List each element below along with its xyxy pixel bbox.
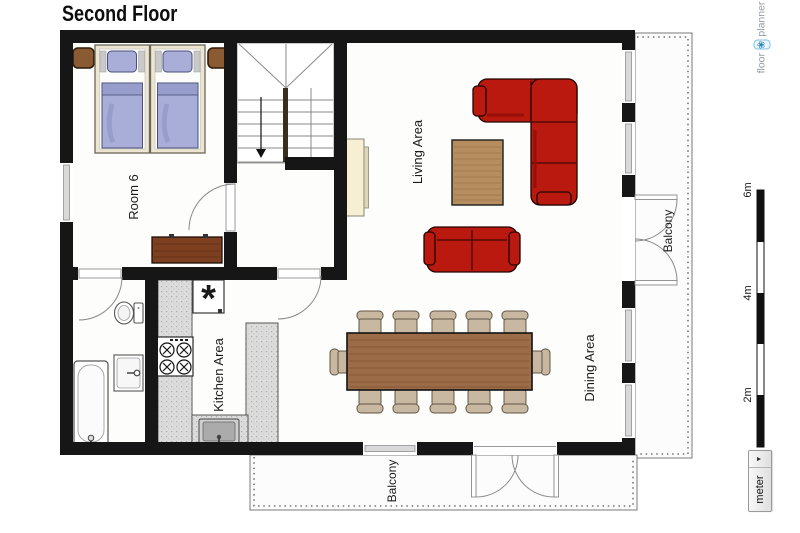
- fridge-icon: *: [201, 278, 216, 320]
- chair: [430, 390, 456, 413]
- counter: [246, 323, 278, 447]
- chair: [393, 390, 419, 413]
- window: [60, 163, 73, 222]
- balcony-bottom: [250, 455, 637, 510]
- room-label-balcony-bottom: Balcony: [385, 460, 399, 503]
- window: [622, 122, 635, 175]
- kitchen-sink: [199, 419, 239, 446]
- nightstand: [73, 48, 94, 68]
- bed: [95, 45, 150, 153]
- chair: [357, 390, 383, 413]
- room-label-kitchen: Kitchen Area: [211, 337, 226, 411]
- floorplan-canvas: *: [0, 0, 800, 533]
- loveseat: [424, 227, 520, 272]
- scale-ruler: 6m 4m 2m: [742, 182, 764, 447]
- pillow: [163, 51, 192, 72]
- chair: [393, 311, 419, 334]
- room-label-balcony-right: Balcony: [661, 210, 675, 253]
- chair: [502, 390, 528, 413]
- chair: [502, 311, 528, 334]
- chair: [466, 311, 492, 334]
- scale-tick-label: 6m: [742, 182, 754, 197]
- coffee-table: [452, 140, 503, 205]
- staircase: [237, 43, 334, 163]
- scale-tick-label: 2m: [742, 387, 754, 402]
- chair: [357, 311, 383, 334]
- floorplan-viewer: Second Floor floor ❀ planner meter ▼: [0, 0, 800, 533]
- window: [622, 308, 635, 363]
- fireplace-unit: [346, 139, 369, 216]
- dresser: [152, 234, 222, 263]
- room-label-dining: Dining Area: [582, 334, 597, 402]
- bed: [151, 45, 206, 153]
- window: [622, 50, 635, 103]
- chair: [466, 390, 492, 413]
- window: [363, 442, 417, 455]
- scale-tick-label: 4m: [742, 285, 754, 300]
- room-label-room6: Room 6: [126, 174, 141, 220]
- bathroom-sink: [114, 355, 143, 391]
- stove: [157, 337, 193, 376]
- room-label-living: Living Area: [410, 119, 425, 184]
- bathtub: [74, 361, 108, 447]
- window: [622, 383, 635, 438]
- chair: [430, 311, 456, 334]
- dining-table: [347, 333, 532, 390]
- chair: [530, 349, 550, 375]
- pillow: [108, 51, 137, 72]
- toilet: [115, 302, 144, 324]
